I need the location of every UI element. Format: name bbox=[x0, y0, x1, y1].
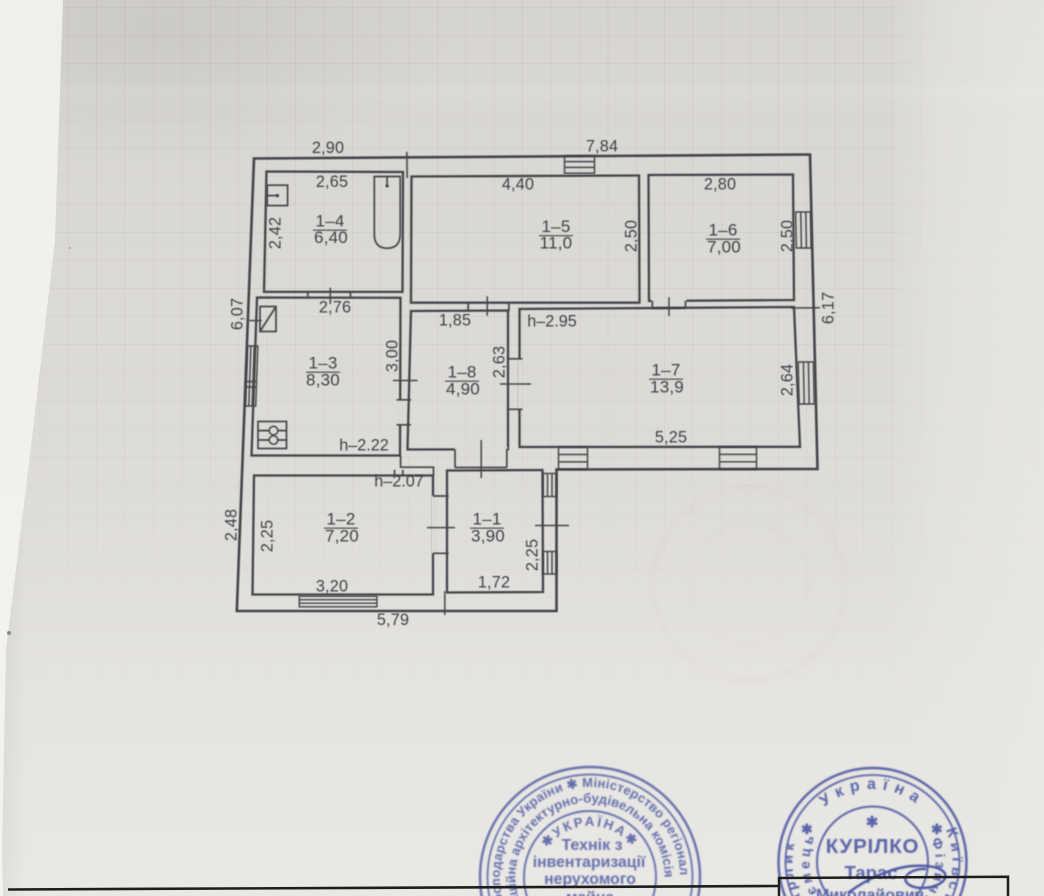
svg-text:3,00: 3,00 bbox=[384, 340, 402, 372]
svg-text:✱: ✱ bbox=[866, 814, 879, 831]
svg-text:h–2.95: h–2.95 bbox=[527, 313, 577, 331]
svg-text:h–2.07: h–2.07 bbox=[374, 473, 424, 491]
svg-text:інвентаризації: інвентаризації bbox=[533, 854, 646, 871]
svg-text:5,25: 5,25 bbox=[655, 429, 687, 447]
svg-text:2,65: 2,65 bbox=[316, 173, 348, 191]
svg-text:4,90: 4,90 bbox=[446, 380, 480, 399]
svg-text:2,80: 2,80 bbox=[704, 176, 736, 194]
svg-text:КУРІЛКО: КУРІЛКО bbox=[826, 835, 920, 858]
svg-text:h–2.22: h–2.22 bbox=[339, 437, 389, 455]
svg-text:2,25: 2,25 bbox=[524, 539, 542, 571]
svg-text:1,85: 1,85 bbox=[439, 312, 471, 330]
svg-text:3,20: 3,20 bbox=[316, 578, 348, 596]
svg-text:8,30: 8,30 bbox=[306, 371, 340, 390]
svg-text:7,00: 7,00 bbox=[707, 238, 741, 257]
svg-text:Технік з: Технік з bbox=[561, 837, 622, 854]
svg-text:2,50: 2,50 bbox=[779, 220, 797, 252]
svg-text:13,9: 13,9 bbox=[650, 378, 684, 397]
svg-text:5,79: 5,79 bbox=[377, 611, 409, 629]
svg-text:4,40: 4,40 bbox=[502, 176, 534, 194]
svg-text:✱: ✱ bbox=[931, 821, 943, 837]
svg-text:2,48: 2,48 bbox=[223, 509, 241, 541]
svg-text:2,76: 2,76 bbox=[319, 299, 351, 317]
svg-text:Україна: Україна bbox=[817, 776, 929, 810]
svg-text:майна: майна bbox=[566, 890, 615, 896]
svg-text:7,20: 7,20 bbox=[325, 527, 359, 546]
svg-text:Миколайович: Миколайович bbox=[816, 887, 924, 896]
svg-text:6,40: 6,40 bbox=[314, 228, 348, 247]
svg-text:11,0: 11,0 bbox=[540, 234, 573, 253]
svg-text:2,64: 2,64 bbox=[779, 364, 797, 396]
svg-text:2,42: 2,42 bbox=[267, 217, 285, 249]
svg-text:2,25: 2,25 bbox=[259, 520, 277, 552]
svg-text:6,07: 6,07 bbox=[229, 298, 247, 330]
svg-text:2,50: 2,50 bbox=[623, 220, 641, 252]
svg-text:2,63: 2,63 bbox=[491, 346, 509, 378]
svg-text:6,17: 6,17 bbox=[820, 292, 838, 324]
svg-text:7,84: 7,84 bbox=[586, 138, 618, 156]
svg-text:1,72: 1,72 bbox=[478, 574, 510, 592]
svg-text:3,90: 3,90 bbox=[471, 527, 505, 546]
svg-text:2,90: 2,90 bbox=[312, 139, 344, 157]
